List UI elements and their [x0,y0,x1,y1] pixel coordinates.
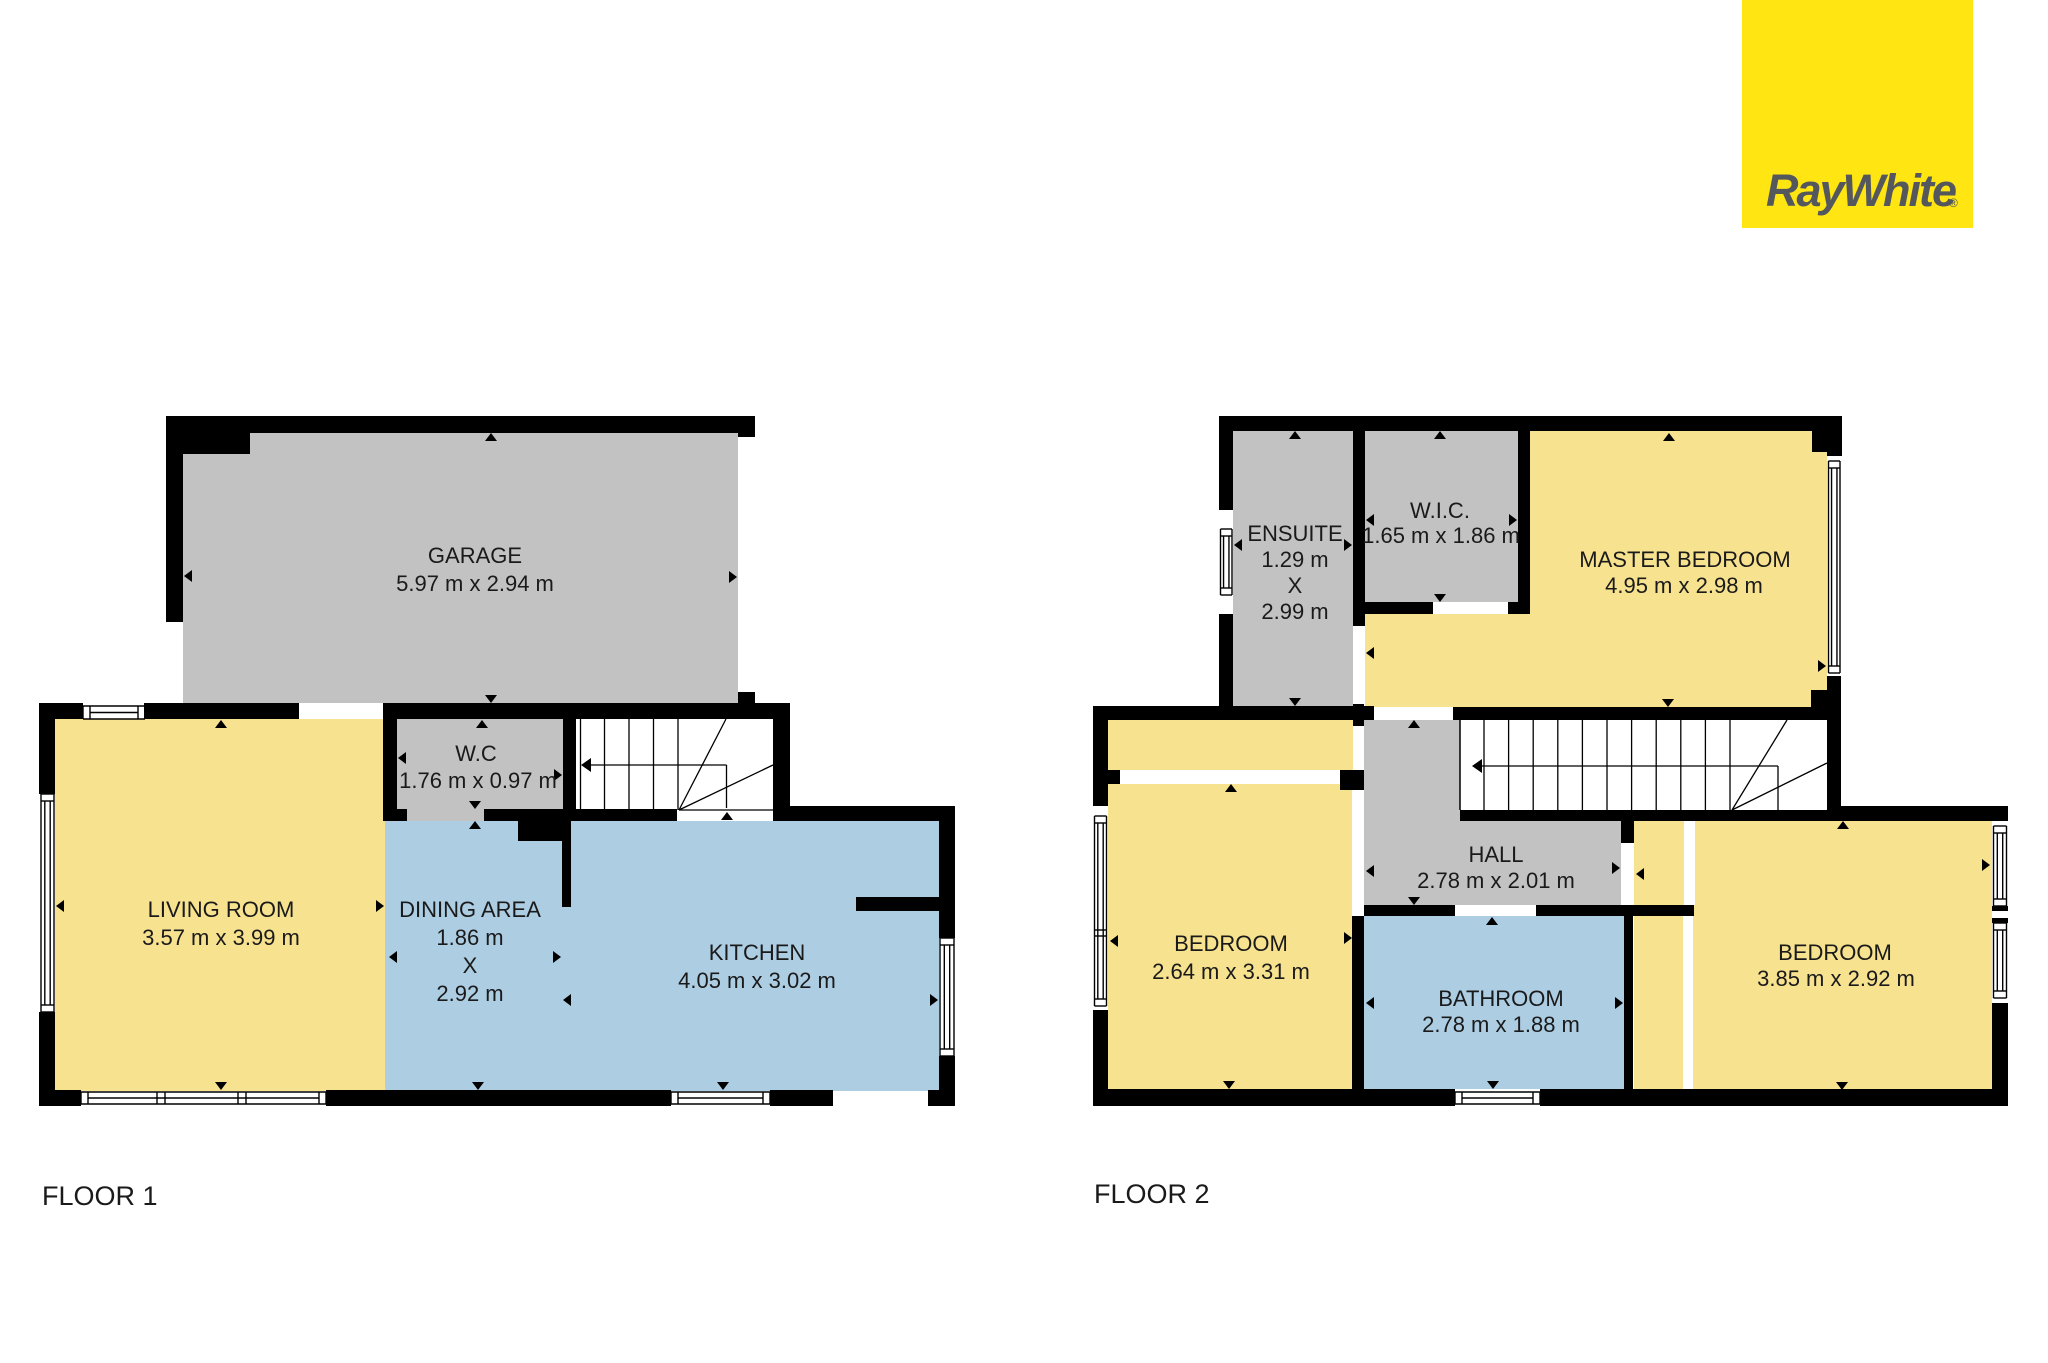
svg-text:MASTER BEDROOM: MASTER BEDROOM [1579,547,1790,572]
svg-text:5.97 m x 2.94 m: 5.97 m x 2.94 m [396,571,554,596]
svg-text:W.I.C.: W.I.C. [1410,498,1470,523]
svg-text:1.29 m: 1.29 m [1261,547,1328,572]
svg-text:X: X [1288,573,1303,598]
svg-text:W.C: W.C [455,741,497,766]
svg-text:FLOOR 2: FLOOR 2 [1094,1179,1210,1209]
svg-text:2.99 m: 2.99 m [1261,599,1328,624]
svg-text:3.57 m x 3.99 m: 3.57 m x 3.99 m [142,925,300,950]
svg-text:ENSUITE: ENSUITE [1247,521,1342,546]
svg-text:2.78 m x 1.88 m: 2.78 m x 1.88 m [1422,1012,1580,1037]
svg-text:BEDROOM: BEDROOM [1778,940,1892,965]
svg-text:1.86 m: 1.86 m [436,925,503,950]
svg-text:X: X [463,953,478,978]
svg-text:1.65 m x 1.86 m: 1.65 m x 1.86 m [1362,523,1520,548]
svg-text:FLOOR 1: FLOOR 1 [42,1181,158,1211]
svg-text:1.76 m x 0.97 m: 1.76 m x 0.97 m [399,768,557,793]
svg-text:BATHROOM: BATHROOM [1438,986,1563,1011]
svg-text:BEDROOM: BEDROOM [1174,931,1288,956]
svg-text:GARAGE: GARAGE [428,543,522,568]
svg-text:2.78 m x 2.01 m: 2.78 m x 2.01 m [1417,868,1575,893]
svg-text:RayWhite: RayWhite [1766,165,1956,216]
svg-text:4.05 m x 3.02 m: 4.05 m x 3.02 m [678,968,836,993]
svg-text:LIVING ROOM: LIVING ROOM [148,897,295,922]
svg-text:KITCHEN: KITCHEN [709,940,806,965]
svg-text:DINING AREA: DINING AREA [399,897,541,922]
svg-text:3.85 m x 2.92 m: 3.85 m x 2.92 m [1757,966,1915,991]
svg-text:HALL: HALL [1468,842,1523,867]
svg-text:2.92 m: 2.92 m [436,981,503,1006]
svg-text:4.95 m x 2.98 m: 4.95 m x 2.98 m [1605,573,1763,598]
svg-text:®: ® [1949,196,1958,210]
svg-text:2.64 m x 3.31 m: 2.64 m x 3.31 m [1152,959,1310,984]
